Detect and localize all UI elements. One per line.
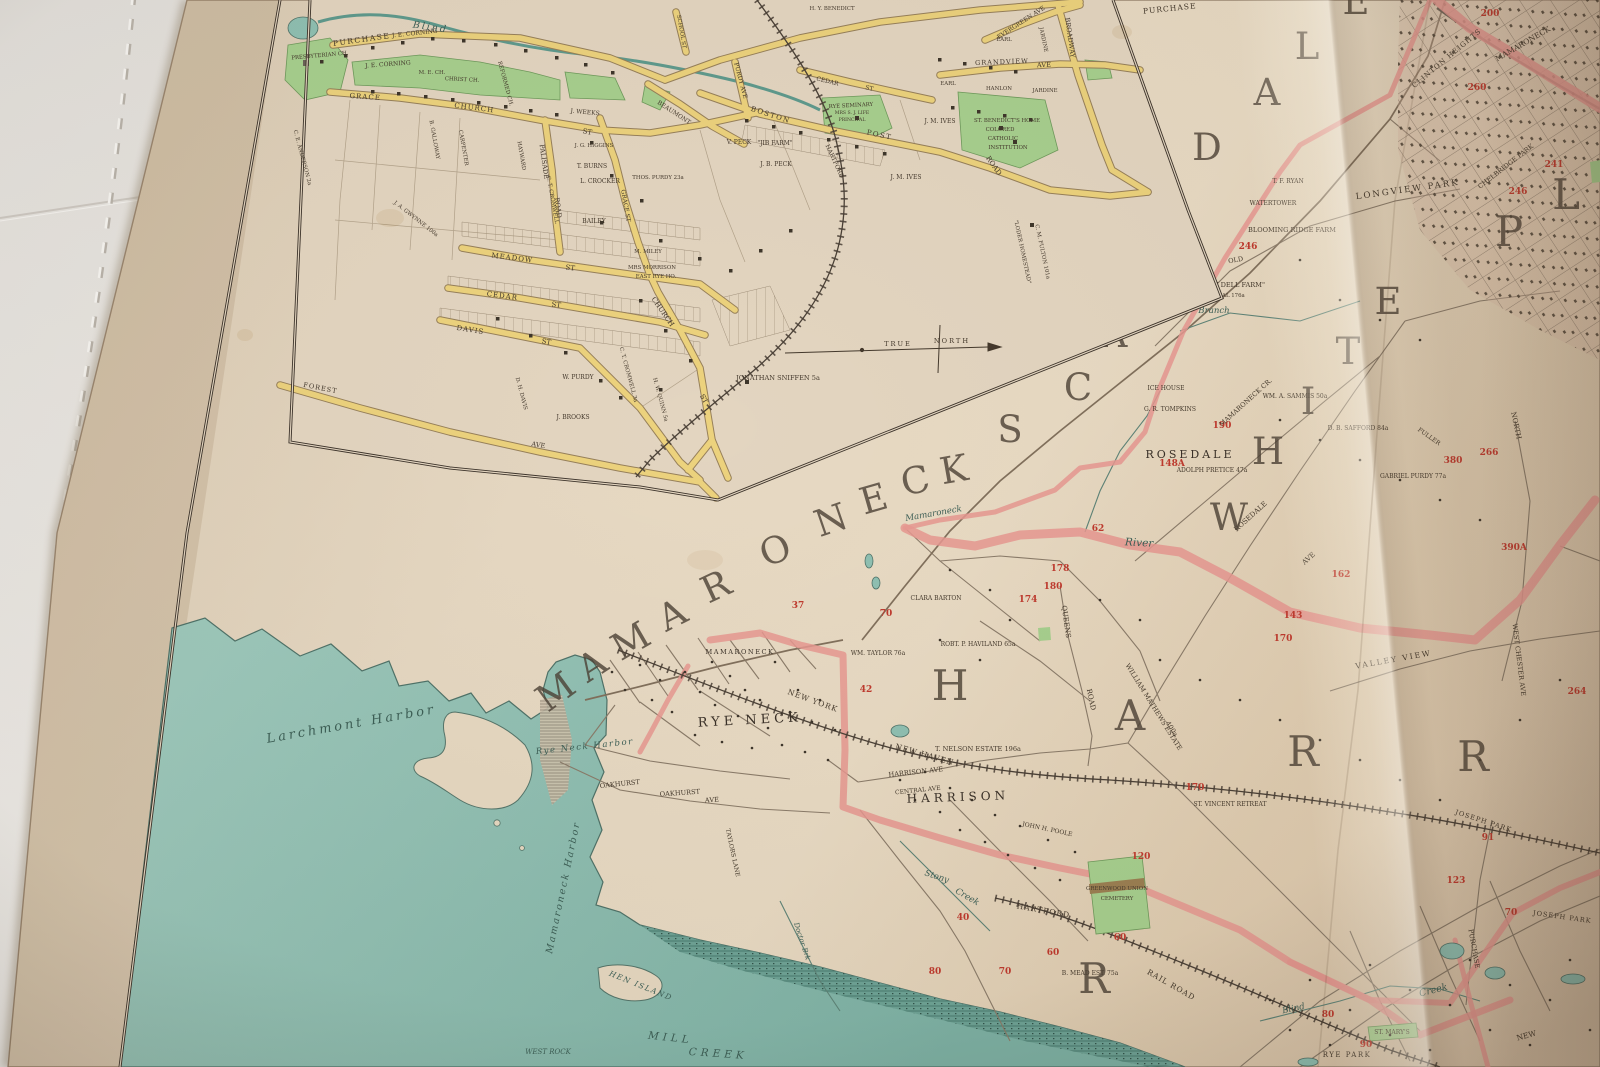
atlas-map-photo: 190 148A 62 178 180 174 70 37 42 143 170… [0, 0, 1600, 1067]
photo-of-atlas-map: 190 148A 62 178 180 174 70 37 42 143 170… [0, 0, 1600, 1067]
photo-vignette [0, 0, 1600, 1067]
